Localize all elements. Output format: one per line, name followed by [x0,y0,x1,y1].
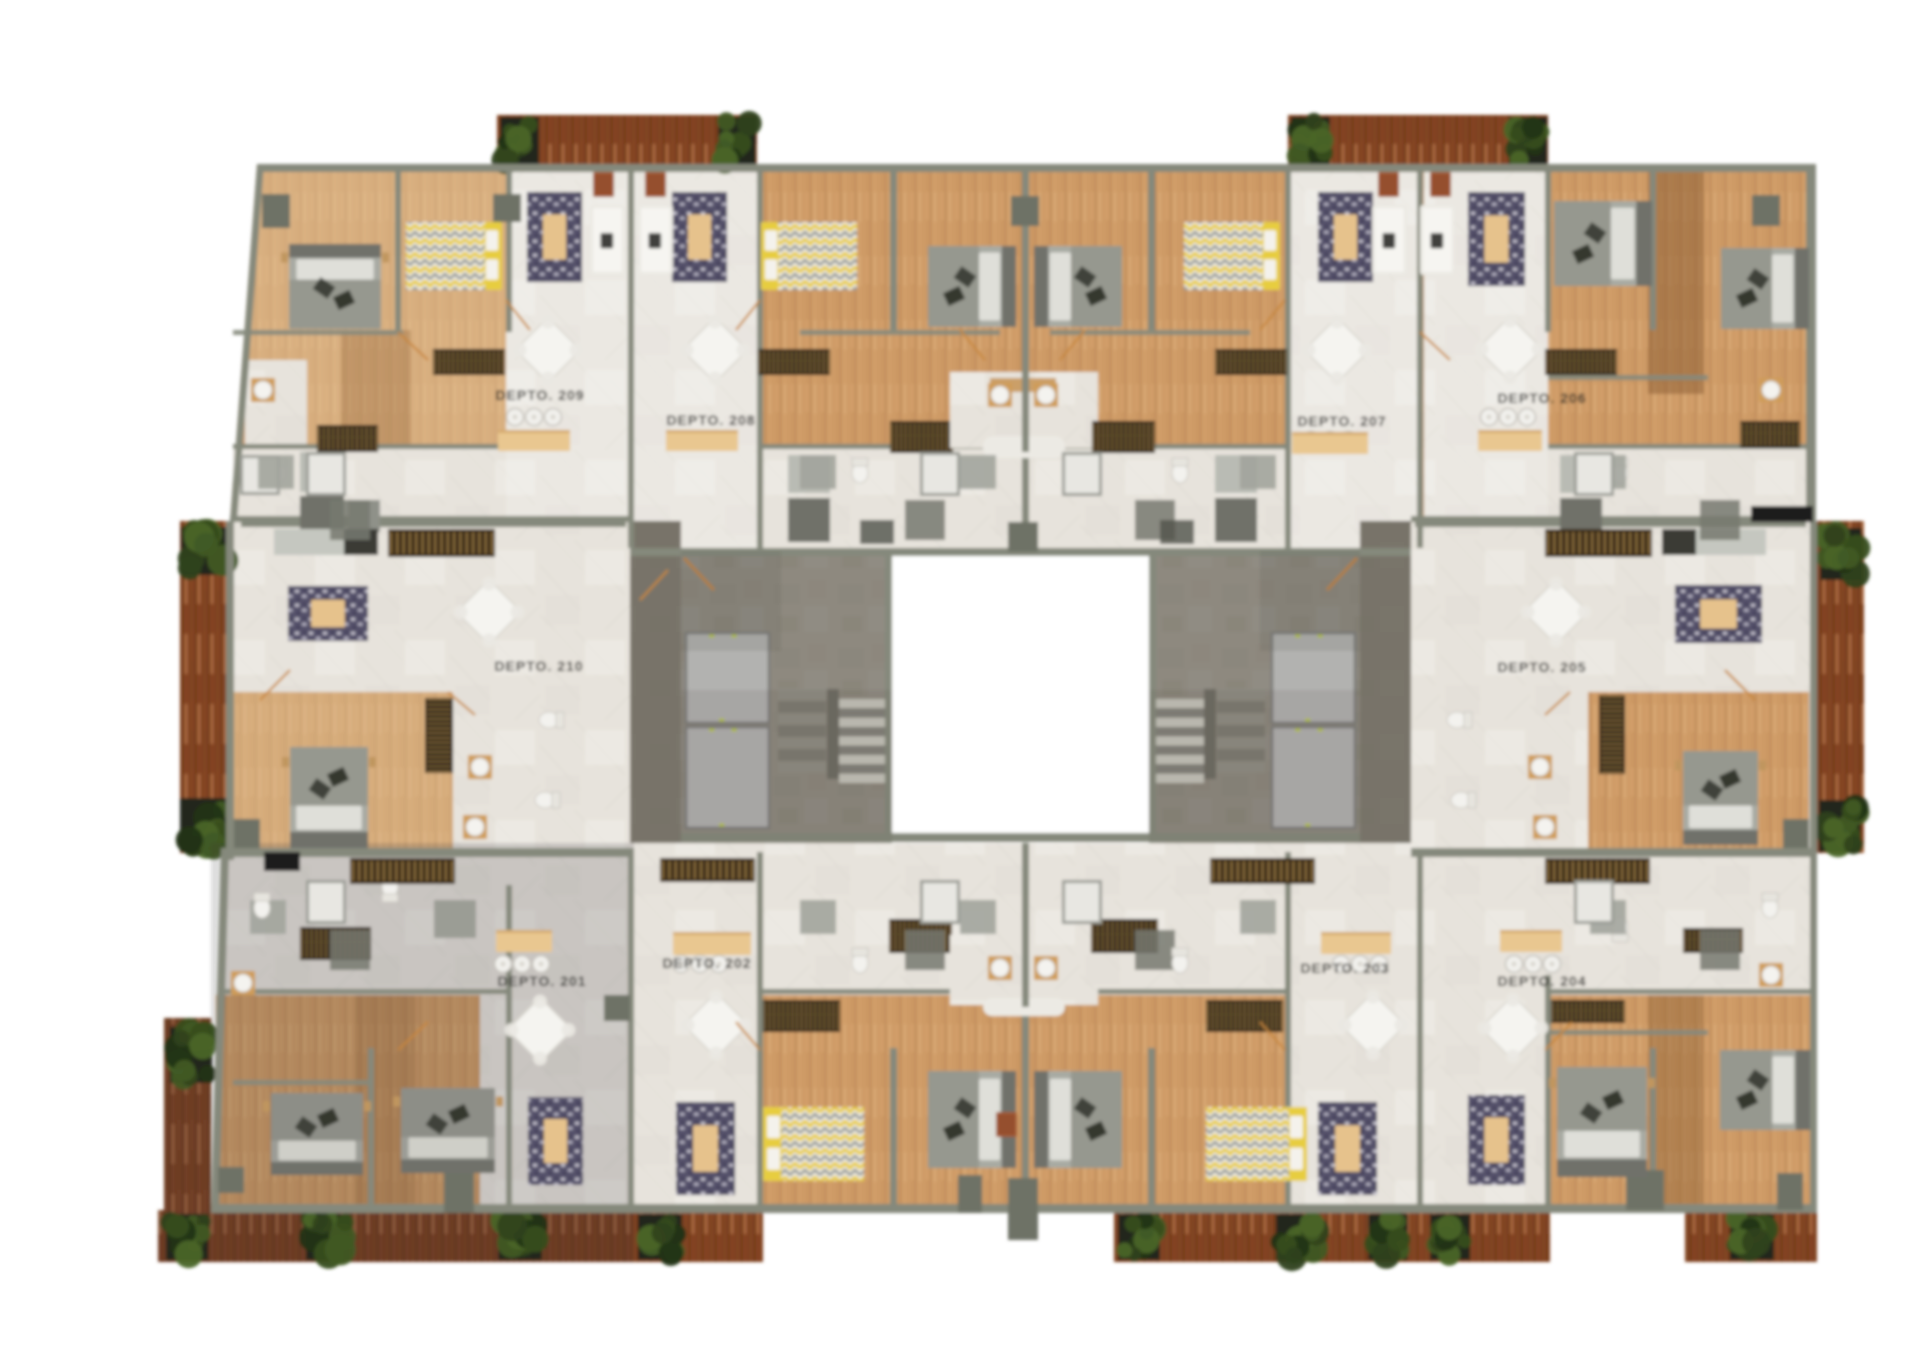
svg-text:DEPTO. 202: DEPTO. 202 [662,955,751,971]
svg-text:DEPTO. 207: DEPTO. 207 [1297,413,1386,429]
svg-text:DEPTO. 209: DEPTO. 209 [495,387,584,403]
svg-text:DEPTO. 204: DEPTO. 204 [1497,973,1586,989]
svg-text:DEPTO. 203: DEPTO. 203 [1300,960,1389,976]
svg-text:DEPTO. 205: DEPTO. 205 [1497,659,1586,675]
svg-text:DEPTO. 206: DEPTO. 206 [1497,390,1586,406]
svg-text:DEPTO. 201: DEPTO. 201 [497,973,586,989]
svg-text:DEPTO. 208: DEPTO. 208 [666,412,755,428]
svg-text:DEPTO. 210: DEPTO. 210 [494,658,583,674]
